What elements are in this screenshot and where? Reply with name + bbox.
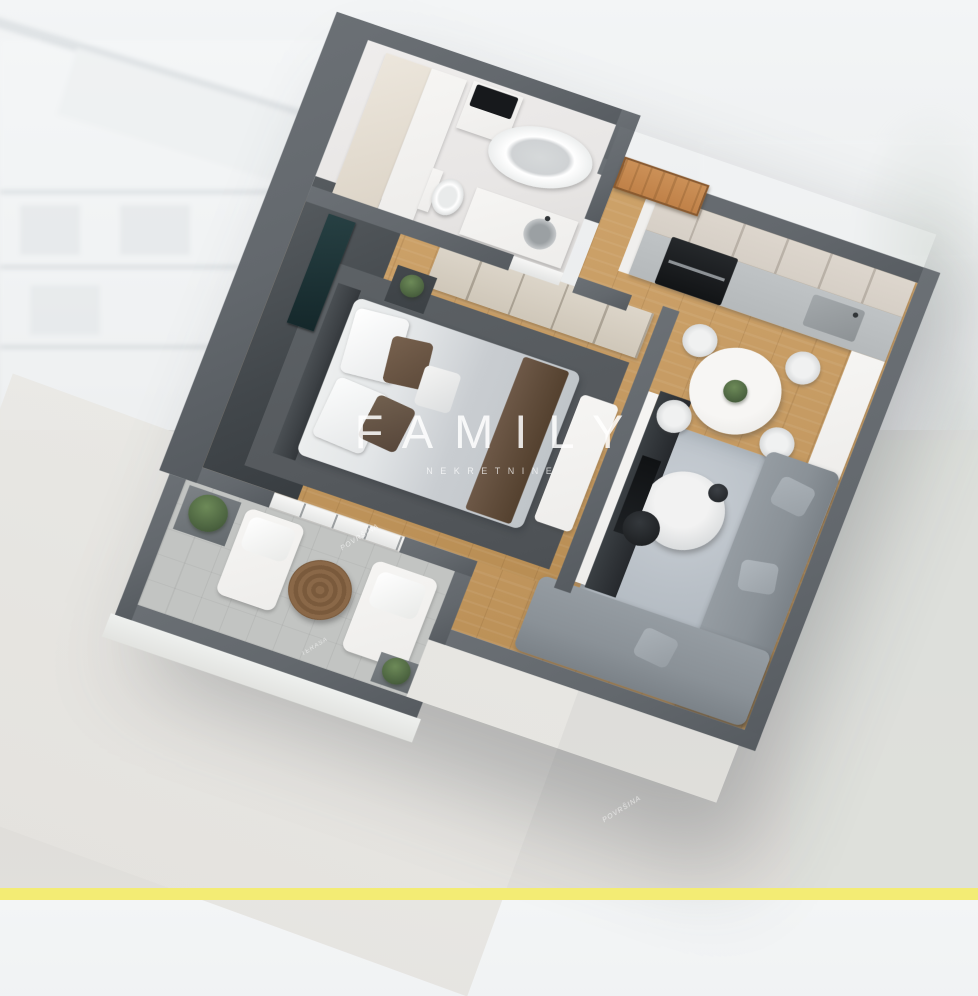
sofa-pillow: [737, 559, 780, 596]
page: { "watermark": { "title": "FAMILY", "sub…: [0, 0, 978, 900]
faded-window: [20, 205, 80, 255]
watermark-subtitle: NEKRETNINE: [334, 466, 645, 476]
bottom-accent-bar: [0, 888, 978, 900]
watermark: FAMILY NEKRETNINE: [334, 404, 645, 476]
faded-window: [30, 285, 100, 335]
faded-window: [120, 205, 190, 255]
watermark-title: FAMILY: [334, 404, 645, 459]
